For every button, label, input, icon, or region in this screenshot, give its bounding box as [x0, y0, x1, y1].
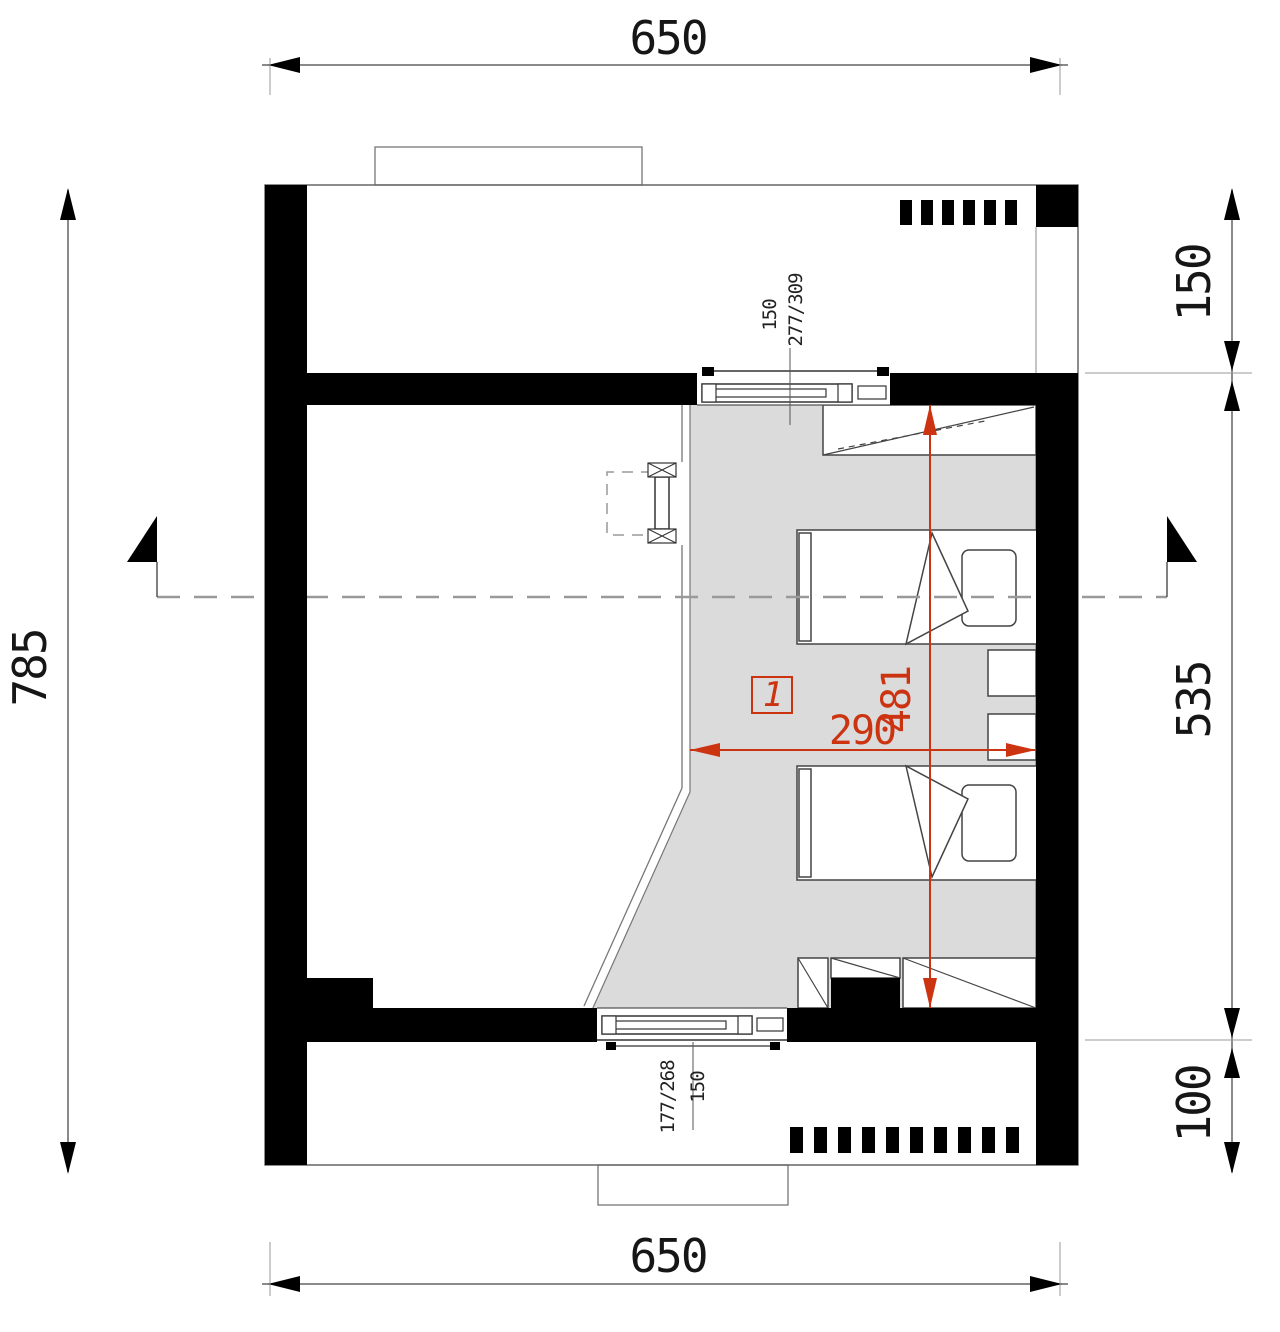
wall-top-interior-left [307, 373, 697, 405]
bed-headboard [799, 533, 811, 641]
dimension-bottom: 650 [262, 1229, 1068, 1296]
wall-corner-top-right [1036, 185, 1078, 227]
window-top-sill: 150 [759, 299, 781, 331]
window-top-size: 277/309 [785, 273, 807, 347]
bed-icon [797, 530, 1037, 644]
wall-left [265, 185, 307, 1165]
dimension-right-chain: 150 535 100 [1085, 188, 1252, 1174]
vent-hatch-top [900, 200, 1017, 225]
wall-bottom-step [307, 978, 373, 1010]
wall-right [1036, 373, 1078, 1165]
window-bottom-size: 177/268 [657, 1060, 679, 1134]
section-marker-right [1167, 516, 1197, 562]
chimney-block [831, 978, 900, 1008]
room-area [584, 403, 1036, 1010]
knee-wall-door [607, 463, 676, 543]
dimension-top: 650 [262, 11, 1068, 95]
dim-right-535: 535 [1167, 661, 1221, 738]
dim-top-label: 650 [629, 11, 706, 65]
window-bottom-sill: 150 [687, 1071, 709, 1103]
pillow-icon [962, 785, 1016, 861]
porch-outline [598, 1165, 788, 1205]
dimension-left: 785 [3, 188, 76, 1174]
chimney-outline [375, 147, 642, 185]
wall-bottom-interior-left [307, 1008, 597, 1042]
dim-room-depth: 481 [874, 667, 920, 733]
nightstand-icon [988, 650, 1036, 696]
room-number: 1 [763, 675, 783, 715]
floor-plan-canvas: 650 650 785 150 535 100 150 277/309 [0, 0, 1280, 1332]
wall-bottom-interior-right [787, 1008, 1036, 1042]
wall-top-interior-right [890, 373, 1036, 405]
bed-headboard [799, 769, 811, 877]
vent-hatch-bottom [790, 1127, 1019, 1153]
dim-right-100: 100 [1167, 1065, 1221, 1142]
section-marker-left [127, 516, 157, 562]
porch-rect [598, 1165, 788, 1205]
window-top [697, 367, 890, 405]
chimney-rect [375, 147, 642, 185]
bed-icon [797, 766, 1037, 880]
dim-bottom-label: 650 [629, 1229, 706, 1283]
pillow-icon [962, 550, 1016, 626]
window-bottom-label: 177/268 150 [657, 1042, 709, 1134]
floor-plan-page: 650 650 785 150 535 100 150 277/309 [0, 0, 1280, 1332]
dim-right-150: 150 [1167, 244, 1221, 321]
window-bottom [597, 1008, 787, 1050]
dim-left-label: 785 [3, 629, 57, 706]
